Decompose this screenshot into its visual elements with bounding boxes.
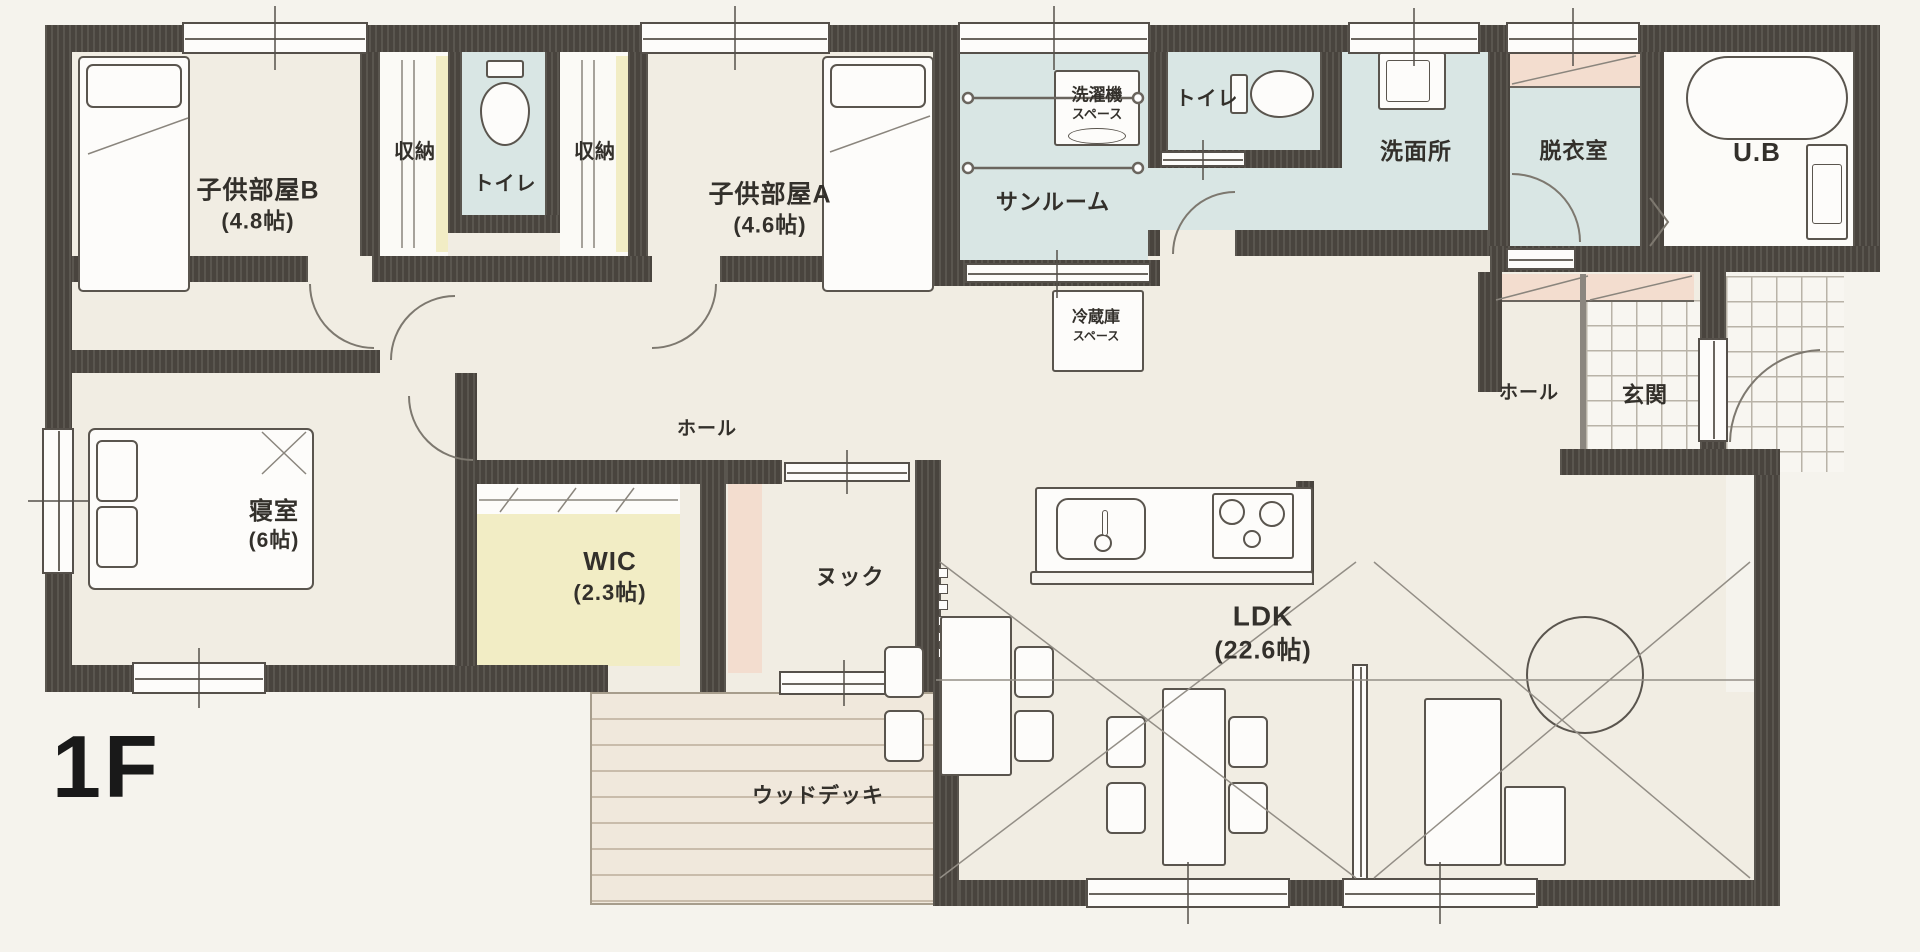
window-kids-b bbox=[182, 22, 368, 54]
washer-space-line1: 洗濯機 bbox=[1072, 86, 1123, 105]
wall-wic-north bbox=[455, 460, 700, 484]
kids-room-b-size: (4.8帖) bbox=[196, 207, 319, 236]
sofa-chaise bbox=[1504, 786, 1566, 866]
nook-name: ヌック bbox=[815, 565, 884, 590]
room-label-ldk: LDK (22.6帖) bbox=[1214, 599, 1311, 668]
floor-number-label: 1F bbox=[52, 716, 161, 818]
closet-a-name: 収納 bbox=[574, 141, 616, 163]
closet-b-yellow-strip bbox=[436, 56, 448, 252]
toilet-2-name: トイレ bbox=[1176, 88, 1239, 110]
sliding-door-toilet-2 bbox=[1160, 151, 1246, 167]
window-ldk-south-2 bbox=[1342, 878, 1538, 908]
sunroom-name: サンルーム bbox=[996, 190, 1110, 215]
room-label-hall-entrance: ホール bbox=[1499, 382, 1559, 407]
washbasin-sink bbox=[1386, 60, 1430, 102]
wall-nook-west bbox=[700, 460, 726, 692]
wall-ldk-east bbox=[1754, 449, 1780, 906]
wall-closet-kidsa bbox=[628, 52, 648, 256]
wall-west-band-south bbox=[45, 665, 608, 692]
wall-kidsb-closet bbox=[360, 52, 380, 256]
wall-nook-north bbox=[726, 460, 782, 484]
ldk-name: LDK bbox=[1233, 601, 1294, 632]
wall-hall-ldk bbox=[1478, 272, 1502, 392]
kids-room-a-size: (4.6帖) bbox=[708, 211, 831, 240]
wic-size: (2.3帖) bbox=[573, 579, 646, 608]
room-label-unit-bath: U.B bbox=[1733, 136, 1781, 170]
wall-corridor-south-b bbox=[1235, 230, 1490, 256]
wall-washroom-dressing bbox=[1488, 52, 1510, 246]
unit-bath-name: U.B bbox=[1733, 137, 1781, 167]
wall-kidsa-sunroom bbox=[933, 25, 960, 286]
entrance-porch-tiles bbox=[1726, 276, 1844, 472]
wall-kids-south-b bbox=[372, 256, 652, 282]
kids-room-b-name: 子供部屋B bbox=[196, 176, 319, 204]
wall-right-north bbox=[1853, 25, 1880, 272]
entrance-tile-floor bbox=[1586, 300, 1700, 449]
kitchen-faucet-stem bbox=[1102, 510, 1108, 536]
bathtub bbox=[1686, 56, 1848, 140]
entrance-step-line bbox=[1580, 274, 1586, 449]
room-label-toilet-2: トイレ bbox=[1176, 86, 1239, 112]
dressing-name: 脱衣室 bbox=[1539, 139, 1608, 164]
pillow-double-1 bbox=[96, 440, 138, 502]
dining-chair bbox=[884, 646, 924, 698]
sliding-door-sunroom bbox=[965, 263, 1151, 283]
room-label-kids-room-b: 子供部屋B (4.8帖) bbox=[196, 174, 319, 235]
entrance-door bbox=[1698, 338, 1728, 442]
dining-chair bbox=[1106, 782, 1146, 834]
ldk-pillar bbox=[1352, 664, 1368, 880]
toilet-1-tank bbox=[486, 60, 524, 78]
toilet-1-name: トイレ bbox=[474, 173, 537, 195]
wall-toilet2-west bbox=[1148, 52, 1168, 150]
washer-space-line2: スペース bbox=[1072, 107, 1123, 124]
room-label-dressing: 脱衣室 bbox=[1539, 138, 1608, 167]
round-rug bbox=[1526, 616, 1644, 734]
pillow-kids-b bbox=[86, 64, 182, 108]
room-label-wood-deck: ウッドデッキ bbox=[752, 782, 884, 809]
room-label-kids-room-a: 子供部屋A (4.6帖) bbox=[708, 178, 831, 239]
shoe-closet bbox=[1494, 274, 1694, 302]
room-label-hall-center: ホール bbox=[677, 418, 737, 443]
dressing-shelf bbox=[1510, 52, 1640, 88]
window-ldk-south-1 bbox=[1086, 878, 1290, 908]
kids-room-a-name: 子供部屋A bbox=[708, 180, 831, 208]
room-label-bedroom: 寝室 (6帖) bbox=[249, 496, 300, 554]
washroom-name: 洗面所 bbox=[1380, 138, 1452, 164]
dining-chair bbox=[1014, 646, 1054, 698]
sliding-door-hall bbox=[1506, 248, 1576, 270]
room-label-nook: ヌック bbox=[815, 564, 884, 593]
dining-chair bbox=[1228, 782, 1268, 834]
window-kids-a bbox=[640, 22, 830, 54]
floor-plan-canvas: 子供部屋B (4.8帖) 収納 トイレ 収納 子供部屋A (4.6帖) サンルー… bbox=[0, 0, 1920, 952]
louver-square bbox=[938, 600, 948, 610]
entrance-name: 玄関 bbox=[1622, 383, 1668, 408]
bedroom-name: 寝室 bbox=[249, 498, 299, 525]
room-label-washroom: 洗面所 bbox=[1380, 137, 1452, 167]
nook-bench bbox=[728, 484, 762, 673]
wall-corridor-south-a bbox=[1148, 230, 1160, 256]
bath-counter-inner bbox=[1812, 164, 1842, 224]
wall-bedroom-east bbox=[455, 373, 477, 666]
fridge-space-line1: 冷蔵庫 bbox=[1072, 309, 1120, 326]
washer-drum bbox=[1068, 128, 1126, 144]
wall-closet-toilet1 bbox=[448, 52, 462, 215]
louver-square bbox=[938, 568, 948, 578]
room-label-closet-a: 収納 bbox=[574, 139, 616, 165]
wall-dressing-ub bbox=[1640, 52, 1664, 246]
hall-entrance-name: ホール bbox=[1499, 383, 1559, 404]
room-label-toilet-1: トイレ bbox=[474, 171, 537, 197]
sliding-door-nook-hall bbox=[784, 462, 910, 482]
window-washroom bbox=[1348, 22, 1480, 54]
louver-square bbox=[938, 584, 948, 594]
kitchen-faucet bbox=[1094, 534, 1112, 552]
dining-chair bbox=[1014, 710, 1054, 762]
stove-burner-2 bbox=[1259, 501, 1285, 527]
closet-b-name: 収納 bbox=[394, 141, 436, 163]
dining-chair bbox=[884, 710, 924, 762]
bedroom-size: (6帖) bbox=[249, 527, 300, 554]
window-dressing bbox=[1506, 22, 1640, 54]
dining-chair bbox=[1228, 716, 1268, 768]
window-sunroom bbox=[958, 22, 1150, 54]
wic-shelf bbox=[477, 484, 680, 516]
closet-a-yellow-strip bbox=[616, 56, 628, 252]
window-bedroom-west bbox=[42, 428, 74, 574]
stove-burner-1 bbox=[1219, 499, 1245, 525]
hall-center-name: ホール bbox=[677, 419, 737, 440]
dining-table-1 bbox=[940, 616, 1012, 776]
pillow-kids-a bbox=[830, 64, 926, 108]
window-bedroom-south bbox=[132, 662, 266, 694]
ldk-size: (22.6帖) bbox=[1214, 635, 1311, 668]
wic-name: WIC bbox=[583, 546, 637, 576]
wall-toilet1-closet bbox=[545, 52, 560, 215]
room-label-sunroom: サンルーム bbox=[996, 189, 1110, 218]
wood-deck-name: ウッドデッキ bbox=[752, 784, 884, 807]
room-label-wic: WIC (2.3帖) bbox=[573, 545, 646, 607]
wall-toilet1-south bbox=[448, 215, 560, 233]
dining-table-2 bbox=[1162, 688, 1226, 866]
label-fridge-space: 冷蔵庫 スペース bbox=[1072, 308, 1120, 344]
room-label-closet-b: 収納 bbox=[394, 139, 436, 165]
wall-bedroom-north bbox=[45, 350, 380, 373]
stove-burner-3 bbox=[1243, 530, 1261, 548]
dining-chair bbox=[1106, 716, 1146, 768]
pillow-double-2 bbox=[96, 506, 138, 568]
sofa-main bbox=[1424, 698, 1502, 866]
label-washer-space: 洗濯機 スペース bbox=[1072, 85, 1123, 124]
kitchen-counter-base bbox=[1030, 571, 1314, 585]
wall-entrance-south bbox=[1560, 449, 1780, 475]
room-label-entrance: 玄関 bbox=[1622, 382, 1668, 411]
fridge-space-line2: スペース bbox=[1072, 329, 1120, 345]
wall-toilet2-washroom bbox=[1320, 52, 1342, 168]
